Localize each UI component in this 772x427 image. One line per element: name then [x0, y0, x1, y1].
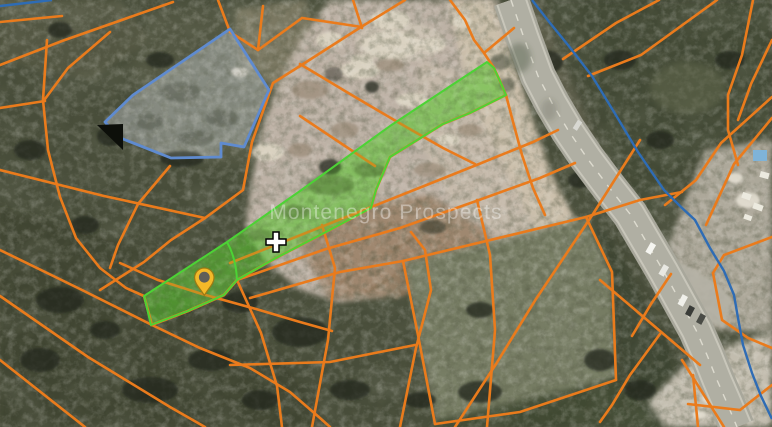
svg-text:Montenegro Prospects: Montenegro Prospects	[269, 201, 502, 224]
